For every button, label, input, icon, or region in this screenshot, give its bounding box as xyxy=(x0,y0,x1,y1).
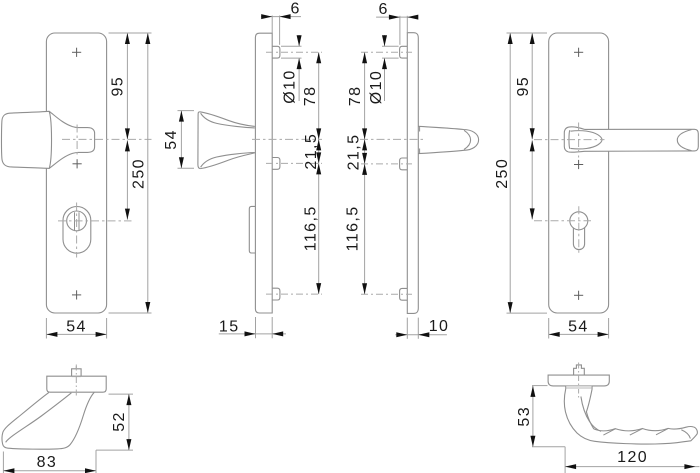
svg-text:116,5: 116,5 xyxy=(344,205,361,251)
svg-text:116,5: 116,5 xyxy=(302,205,319,251)
svg-text:52: 52 xyxy=(111,411,128,432)
svg-text:54: 54 xyxy=(568,319,589,336)
svg-text:95: 95 xyxy=(109,76,126,97)
svg-text:6: 6 xyxy=(290,1,300,18)
svg-text:53: 53 xyxy=(516,406,533,427)
svg-text:78: 78 xyxy=(302,86,319,107)
svg-text:54: 54 xyxy=(66,318,87,335)
svg-text:83: 83 xyxy=(37,454,58,471)
svg-text:21,5: 21,5 xyxy=(303,133,320,170)
svg-text:10: 10 xyxy=(429,318,450,335)
svg-text:Ø10: Ø10 xyxy=(368,70,385,104)
svg-text:21,5: 21,5 xyxy=(346,134,363,171)
svg-text:250: 250 xyxy=(494,158,511,189)
svg-text:120: 120 xyxy=(617,449,648,466)
svg-text:95: 95 xyxy=(515,76,532,97)
svg-text:Ø10: Ø10 xyxy=(282,69,299,103)
svg-text:6: 6 xyxy=(379,1,389,18)
svg-text:15: 15 xyxy=(219,318,240,335)
svg-text:54: 54 xyxy=(163,129,180,150)
svg-text:78: 78 xyxy=(347,86,364,107)
svg-text:250: 250 xyxy=(131,158,148,189)
